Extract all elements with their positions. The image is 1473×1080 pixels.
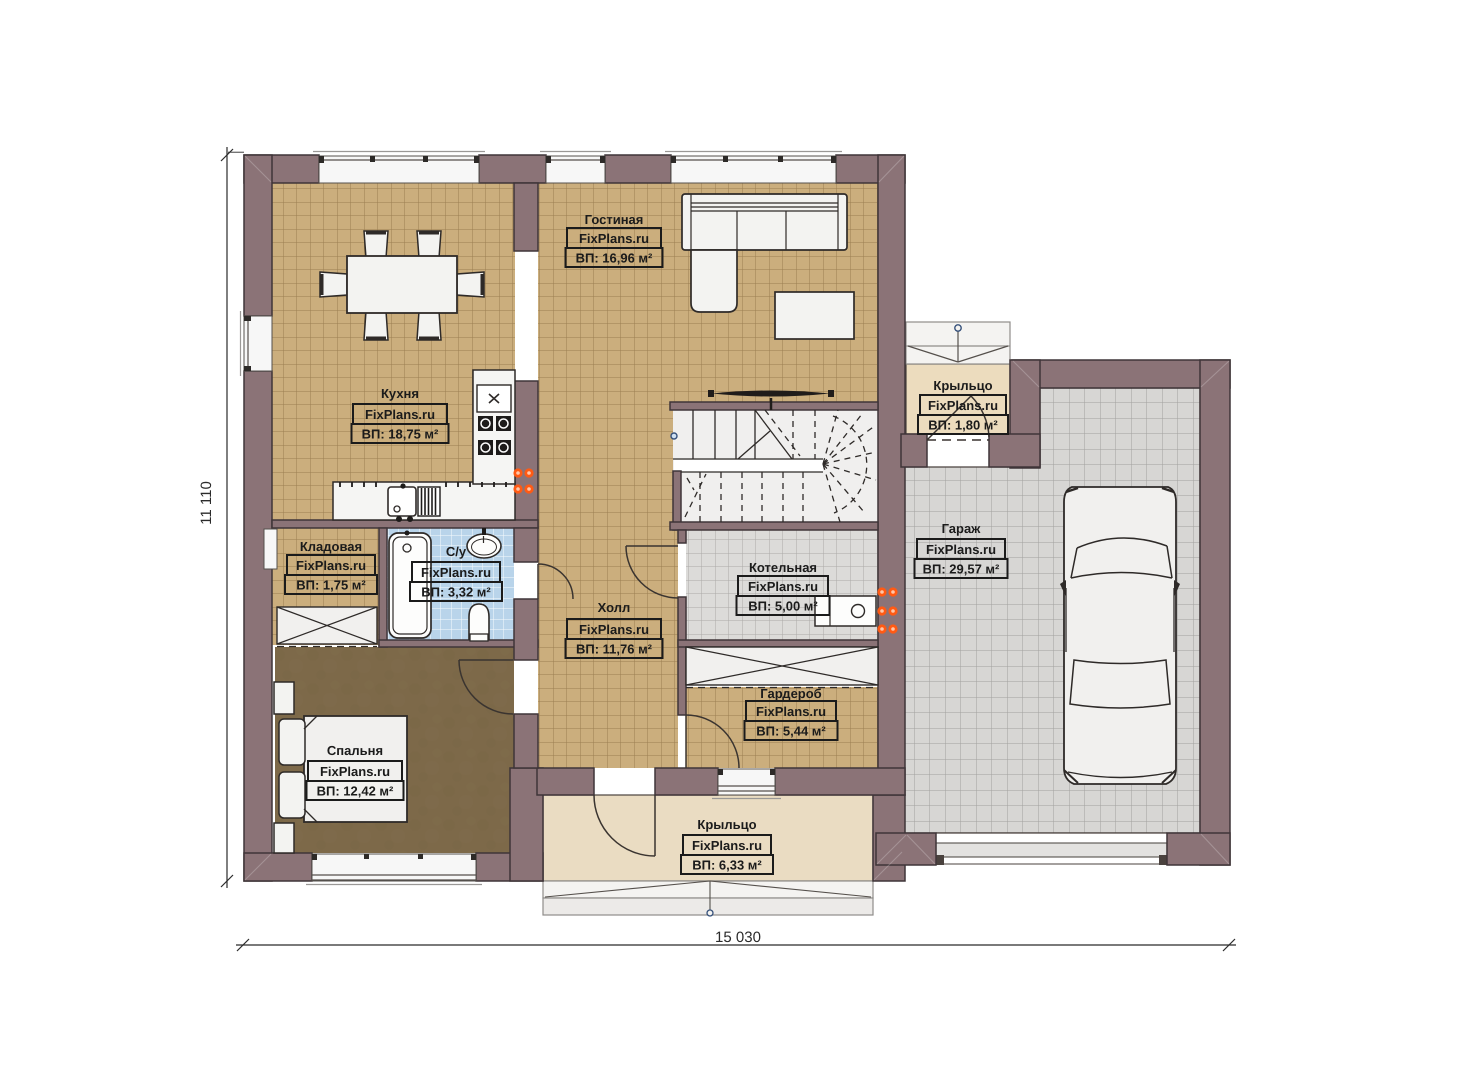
svg-text:С/у: С/у: [446, 544, 467, 559]
svg-text:Крыльцо: Крыльцо: [697, 817, 756, 832]
svg-text:Холл: Холл: [598, 600, 631, 615]
svg-text:Кладовая: Кладовая: [300, 539, 362, 554]
svg-text:ВП: 3,32 м²: ВП: 3,32 м²: [421, 585, 491, 600]
svg-text:FixPlans.ru: FixPlans.ru: [748, 579, 818, 594]
svg-text:FixPlans.ru: FixPlans.ru: [756, 704, 826, 719]
svg-text:ВП: 1,80 м²: ВП: 1,80 м²: [928, 418, 998, 433]
svg-text:ВП: 5,00 м²: ВП: 5,00 м²: [748, 599, 818, 614]
svg-text:Гардероб: Гардероб: [760, 686, 821, 701]
svg-text:FixPlans.ru: FixPlans.ru: [320, 764, 390, 779]
svg-text:Котельная: Котельная: [749, 560, 817, 575]
svg-text:FixPlans.ru: FixPlans.ru: [296, 558, 366, 573]
svg-text:Спальня: Спальня: [327, 743, 383, 758]
svg-text:ВП: 1,75 м²: ВП: 1,75 м²: [296, 578, 366, 593]
svg-text:Гараж: Гараж: [942, 521, 982, 536]
svg-text:FixPlans.ru: FixPlans.ru: [421, 565, 491, 580]
svg-text:FixPlans.ru: FixPlans.ru: [365, 407, 435, 422]
svg-text:Кухня: Кухня: [381, 386, 419, 401]
svg-text:FixPlans.ru: FixPlans.ru: [579, 231, 649, 246]
svg-text:ВП: 29,57 м²: ВП: 29,57 м²: [923, 562, 1000, 577]
svg-text:Гостиная: Гостиная: [585, 212, 644, 227]
svg-text:FixPlans.ru: FixPlans.ru: [579, 622, 649, 637]
svg-text:FixPlans.ru: FixPlans.ru: [928, 398, 998, 413]
svg-text:ВП: 16,96 м²: ВП: 16,96 м²: [576, 251, 653, 266]
svg-text:ВП: 6,33 м²: ВП: 6,33 м²: [692, 858, 762, 873]
svg-text:ВП: 12,42 м²: ВП: 12,42 м²: [317, 784, 394, 799]
svg-text:FixPlans.ru: FixPlans.ru: [926, 542, 996, 557]
svg-text:Крыльцо: Крыльцо: [933, 378, 992, 393]
svg-text:ВП: 18,75 м²: ВП: 18,75 м²: [362, 427, 439, 442]
svg-text:FixPlans.ru: FixPlans.ru: [692, 838, 762, 853]
svg-text:ВП: 5,44 м²: ВП: 5,44 м²: [756, 724, 826, 739]
svg-text:11 110: 11 110: [198, 481, 215, 525]
svg-text:ВП: 11,76 м²: ВП: 11,76 м²: [576, 642, 653, 657]
svg-text:15 030: 15 030: [715, 929, 761, 946]
